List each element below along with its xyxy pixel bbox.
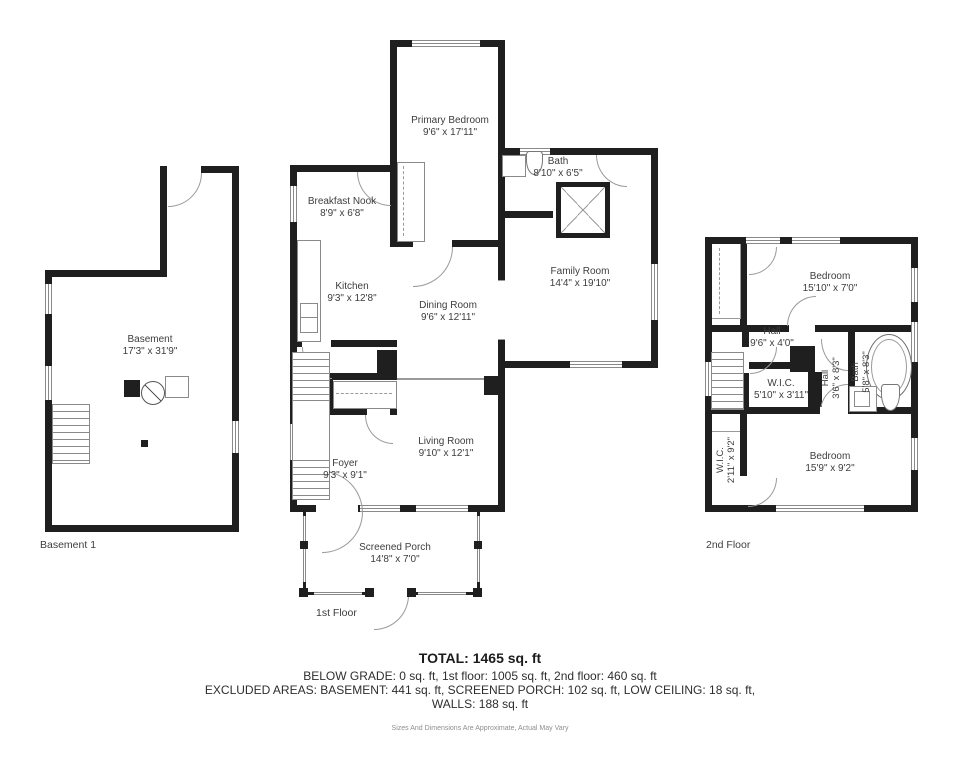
shelf-line <box>712 431 740 432</box>
door-arc <box>365 415 393 444</box>
porch-screen <box>303 516 306 542</box>
room-label-bath-first: Bath 8'10" x 6'5" <box>533 156 582 180</box>
room-name: W.I.C. <box>754 378 808 390</box>
wall <box>331 340 397 347</box>
wall <box>290 165 397 172</box>
window <box>232 421 239 453</box>
chimney <box>377 350 397 374</box>
closet-rod <box>403 166 404 236</box>
room-dims: 9'6" x 4'0" <box>750 338 794 350</box>
room-name: Bedroom <box>803 271 858 283</box>
room-label-dining-room: Dining Room 9'6" x 12'11" <box>419 300 477 324</box>
window <box>776 505 864 512</box>
sink-basin-icon <box>854 391 870 407</box>
room-label-primary-bedroom: Primary Bedroom 9'6" x 17'11" <box>411 115 489 139</box>
furnace-icon <box>124 380 140 397</box>
room-name: Screened Porch <box>359 542 431 554</box>
room-label-wic-strip: W.I.C. 2'11" x 9'2" <box>715 437 737 483</box>
window <box>412 40 480 47</box>
window <box>911 322 918 362</box>
wall <box>742 332 749 347</box>
walls-area-text: WALLS: 188 sq. ft <box>0 697 960 711</box>
porch-screen <box>314 592 362 595</box>
room-dims: 2'11" x 9'2" <box>726 437 737 483</box>
room-label-hall-corridor: Hall 3'6" x 8'3" <box>820 357 842 399</box>
wall <box>815 325 911 332</box>
water-heater-icon <box>141 381 165 405</box>
room-name: Living Room <box>418 436 474 448</box>
door-arc <box>322 512 363 553</box>
room-name: Bedroom <box>805 451 854 463</box>
door-arc <box>750 347 777 374</box>
floor-label-second: 2nd Floor <box>706 539 750 551</box>
excluded-area-text: EXCLUDED AREAS: BASEMENT: 441 sq. ft, SC… <box>0 683 960 697</box>
grade-area-text: BELOW GRADE: 0 sq. ft, 1st floor: 1005 s… <box>0 669 960 683</box>
door-arc <box>374 595 409 630</box>
closet <box>712 244 741 319</box>
room-label-wic: W.I.C. 5'10" x 3'11" <box>754 378 808 402</box>
door-arc <box>413 247 453 287</box>
room-label-breakfast-nook: Breakfast Nook 8'9" x 6'8" <box>308 196 376 220</box>
room-name: Breakfast Nook <box>308 196 376 208</box>
room-dims: 14'8" x 7'0" <box>359 554 431 566</box>
room-dims: 3'6" x 8'3" <box>831 357 842 399</box>
wall <box>651 148 658 368</box>
porch-screen <box>477 516 480 542</box>
stair-landing <box>292 400 330 462</box>
room-dims: 9'3" x 9'1" <box>323 470 367 482</box>
closet <box>397 162 425 242</box>
room-dims: 8'10" x 6'5" <box>533 168 582 180</box>
door-arc <box>787 296 816 326</box>
porch-post <box>365 588 374 597</box>
floor-label-first: 1st Floor <box>316 607 357 619</box>
utility-tank-icon <box>165 376 189 398</box>
room-dims: 9'10" x 12'1" <box>418 448 474 460</box>
porch-post <box>473 588 482 597</box>
room-name: W.I.C. <box>715 437 726 483</box>
wall <box>484 376 504 395</box>
area-summary: TOTAL: 1465 sq. ft BELOW GRADE: 0 sq. ft… <box>0 650 960 732</box>
room-name: Family Room <box>550 266 610 278</box>
stairs <box>292 352 330 402</box>
wall <box>740 244 747 332</box>
room-dims: 15'10" x 7'0" <box>803 283 858 295</box>
door-opening <box>167 166 201 173</box>
room-dims: 5'8" x 8'3" <box>861 351 872 393</box>
wall <box>390 408 397 415</box>
room-dims: 9'6" x 12'11" <box>419 312 477 324</box>
shower-icon <box>556 182 610 238</box>
room-label-hall: Hall 9'6" x 4'0" <box>750 326 794 350</box>
wall <box>327 408 367 415</box>
room-dims: 17'3" x 31'9" <box>123 346 178 358</box>
porch-screen <box>303 548 306 582</box>
window <box>911 438 918 470</box>
room-dims: 15'9" x 9'2" <box>805 463 854 475</box>
door-opening <box>820 407 848 414</box>
room-label-bath-second: Bath 5'8" x 8'3" <box>850 351 872 393</box>
room-dims: 5'10" x 3'11" <box>754 390 808 402</box>
room-label-bedroom-top: Bedroom 15'10" x 7'0" <box>803 271 858 295</box>
wall <box>740 414 747 476</box>
window <box>570 361 622 368</box>
closet-rod <box>719 248 720 314</box>
wall <box>160 166 167 277</box>
window <box>416 505 468 512</box>
room-name: Bath <box>533 156 582 168</box>
bath-vanity-icon <box>502 155 526 177</box>
wall <box>232 166 239 532</box>
room-dims: 14'4" x 19'10" <box>550 278 610 290</box>
stairs <box>52 404 90 464</box>
porch-screen <box>477 548 480 582</box>
wall <box>327 373 397 380</box>
floor-plan-canvas: Basement 17'3" x 31'9" Basement 1 <box>0 0 960 768</box>
closet-rod <box>336 393 392 394</box>
window <box>746 237 780 244</box>
wall <box>45 525 239 532</box>
porch-post <box>300 541 308 549</box>
room-label-basement: Basement 17'3" x 31'9" <box>123 334 178 358</box>
window <box>792 237 840 244</box>
window <box>651 264 658 320</box>
wall <box>45 270 167 277</box>
room-dims: 9'3" x 12'8" <box>327 293 376 305</box>
porch-screen <box>418 592 466 595</box>
door-arc <box>168 173 202 207</box>
stairs <box>711 352 744 410</box>
window <box>290 186 297 222</box>
room-label-family-room: Family Room 14'4" x 19'10" <box>550 266 610 290</box>
wall <box>498 211 553 218</box>
room-label-bedroom-bottom: Bedroom 15'9" x 9'2" <box>805 451 854 475</box>
room-label-screened-porch: Screened Porch 14'8" x 7'0" <box>359 542 431 566</box>
porch-post <box>474 541 482 549</box>
support-post-icon <box>141 440 148 447</box>
room-name: Hall <box>820 357 831 399</box>
room-name: Hall <box>750 326 794 338</box>
window <box>45 366 52 400</box>
room-name: Kitchen <box>327 281 376 293</box>
window <box>360 505 400 512</box>
door-arc <box>749 247 777 275</box>
wall <box>498 40 505 512</box>
disclaimer-text: Sizes And Dimensions Are Approximate, Ac… <box>0 725 960 732</box>
room-name: Foyer <box>323 458 367 470</box>
wall <box>390 40 397 247</box>
total-area-text: TOTAL: 1465 sq. ft <box>0 650 960 666</box>
room-name: Bath <box>850 351 861 393</box>
pantry-closet <box>333 381 397 409</box>
porch-post <box>407 588 416 597</box>
door-arc <box>748 478 777 507</box>
room-dims: 8'9" x 6'8" <box>308 208 376 220</box>
room-label-kitchen: Kitchen 9'3" x 12'8" <box>327 281 376 305</box>
window <box>45 284 52 314</box>
room-label-living-room: Living Room 9'10" x 12'1" <box>418 436 474 460</box>
porch-post <box>299 588 308 597</box>
cased-opening <box>397 378 485 380</box>
room-name: Primary Bedroom <box>411 115 489 127</box>
room-name: Basement <box>123 334 178 346</box>
room-label-foyer: Foyer 9'3" x 9'1" <box>323 458 367 482</box>
wall <box>452 240 505 247</box>
floor-label-basement: Basement 1 <box>40 539 96 551</box>
room-name: Dining Room <box>419 300 477 312</box>
kitchen-sink-icon <box>300 317 318 333</box>
window <box>911 268 918 302</box>
cased-opening <box>498 280 505 340</box>
room-dims: 9'6" x 17'11" <box>411 127 489 139</box>
